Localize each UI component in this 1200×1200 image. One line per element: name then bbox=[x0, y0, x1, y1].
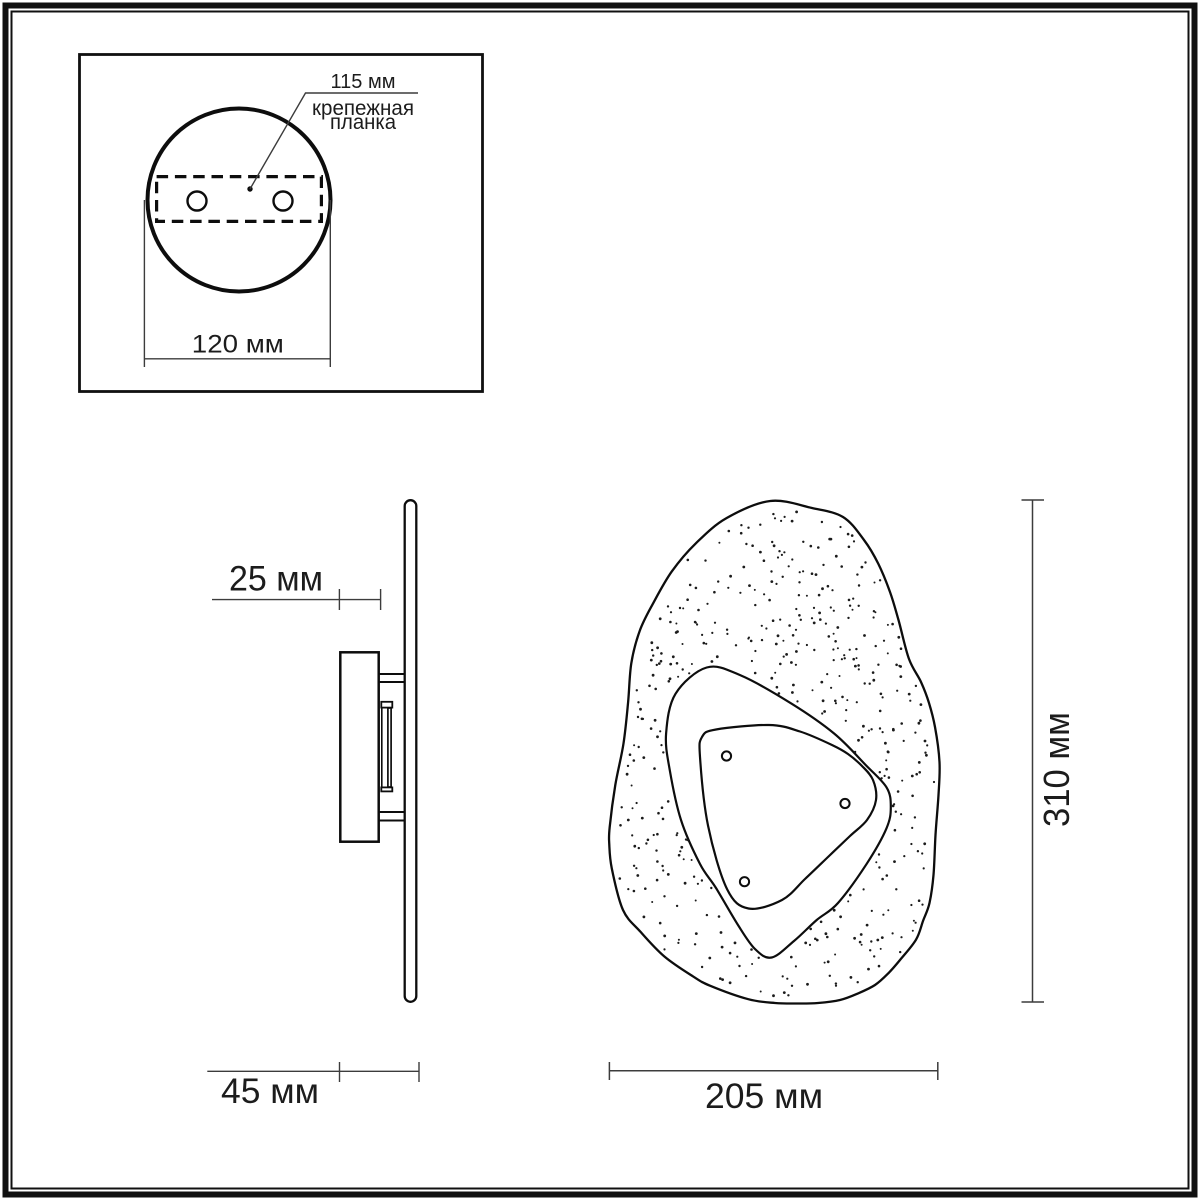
svg-text:115 мм: 115 мм bbox=[331, 71, 396, 93]
svg-text:45 мм: 45 мм bbox=[221, 1072, 319, 1111]
svg-text:310 мм: 310 мм bbox=[1036, 712, 1077, 827]
svg-text:205 мм: 205 мм bbox=[705, 1077, 823, 1116]
svg-text:120 мм: 120 мм bbox=[192, 331, 284, 359]
svg-text:планка: планка bbox=[330, 111, 396, 134]
svg-text:25 мм: 25 мм bbox=[229, 560, 323, 599]
